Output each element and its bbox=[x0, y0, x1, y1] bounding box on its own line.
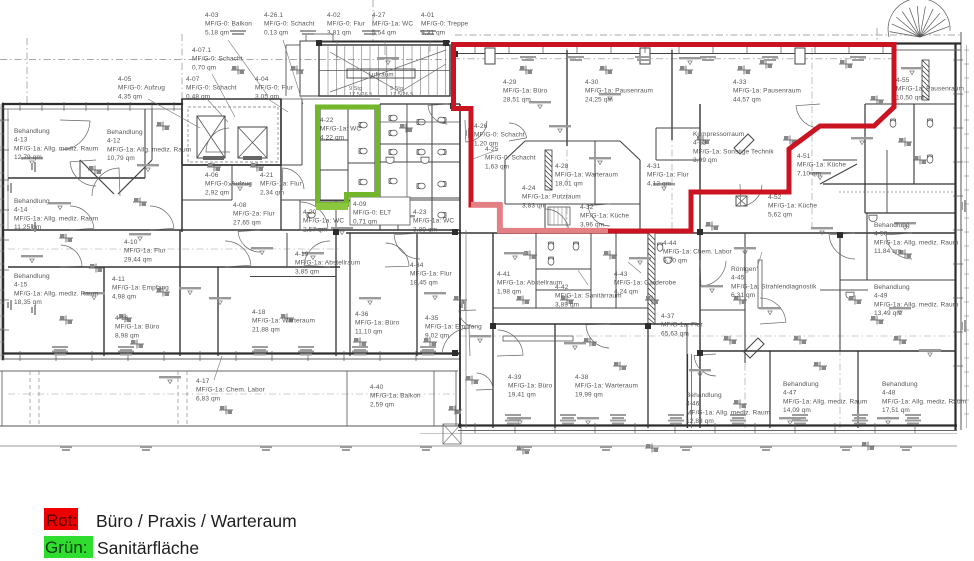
svg-text:Luftraum: Luftraum bbox=[368, 71, 393, 78]
svg-text:Rot:: Rot: bbox=[46, 511, 77, 530]
svg-text:Büro / Praxis / Warteraum: Büro / Praxis / Warteraum bbox=[96, 511, 297, 531]
svg-text:Sanitärfläche: Sanitärfläche bbox=[97, 538, 199, 558]
svg-text:Grün:: Grün: bbox=[45, 538, 88, 557]
